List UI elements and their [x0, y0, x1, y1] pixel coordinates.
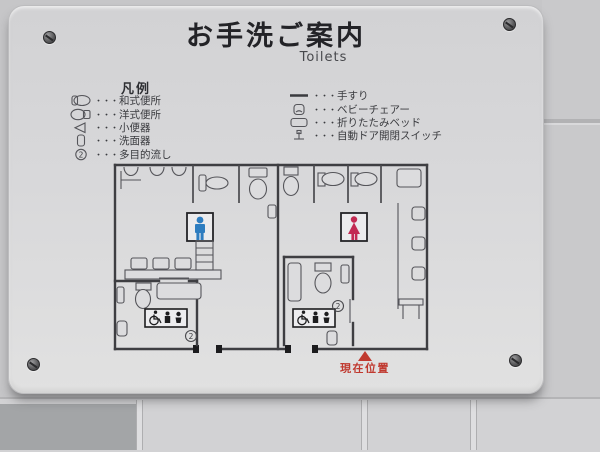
- multipurpose-sink-icon: 2: [67, 148, 93, 161]
- urinal: [124, 167, 138, 176]
- squat-toilet-icon: [67, 94, 93, 107]
- western-toilet: [322, 173, 344, 186]
- svg-text:2: 2: [336, 302, 341, 311]
- western-toilet: [355, 173, 377, 186]
- svg-text:2: 2: [189, 332, 194, 341]
- washbasin: [131, 258, 147, 269]
- mens-area: 2: [115, 165, 276, 345]
- legend-left-column: ・・・ 和式便所 ・・・ 洋式便所 ・・・ 小便器 ・・・ 洗面器: [67, 94, 172, 161]
- legend-right-column: ・・・ 手すり ・・・ ベビーチェアー ・・・ 折りたたみベッド ・・・ 自動ド…: [285, 89, 442, 143]
- legend-item-western-toilet: ・・・ 洋式便所: [67, 107, 172, 120]
- folding-bed-icon: [285, 116, 311, 129]
- handrail-icon: [285, 89, 311, 102]
- person-icon: [165, 312, 170, 324]
- folding-bed: [397, 169, 421, 187]
- folding-bed: [196, 241, 213, 270]
- legend-item-squat-toilet: ・・・ 和式便所: [67, 94, 172, 107]
- womens-area: 2: [284, 165, 426, 345]
- baby-chair: [412, 237, 425, 250]
- washbasin-icon: [67, 134, 93, 147]
- legend-item-auto-door-switch: ・・・ 自動ドア開閉スイッチ: [285, 129, 442, 142]
- western-toilet: [284, 177, 299, 196]
- entrance-post: [216, 345, 222, 353]
- accessible-room-right: 2: [284, 257, 353, 345]
- floor-plan: 2: [101, 159, 461, 373]
- entrance-post: [312, 345, 318, 353]
- folding-bed: [288, 263, 301, 301]
- wall-tile-dark: [0, 404, 136, 450]
- washbasin: [175, 258, 191, 269]
- legend-item-folding-bed: ・・・ 折りたたみベッド: [285, 116, 442, 129]
- legend-item-baby-chair: ・・・ ベビーチェアー: [285, 102, 442, 115]
- mens-room-symbol: [187, 213, 213, 241]
- entrance-post: [193, 345, 199, 353]
- current-location-label: 現在位置: [340, 361, 390, 373]
- tile-joint-vertical: [470, 400, 477, 450]
- tile-joint-vertical: [361, 400, 368, 450]
- western-toilet: [250, 179, 267, 199]
- western-toilet: [136, 290, 151, 309]
- legend-item-washbasin: ・・・ 洗面器: [67, 134, 172, 147]
- toilet-guide-sign: お手洗ご案内 Toilets 凡例 ・・・ 和式便所 ・・・ 洋式便所 ・・・ …: [8, 5, 544, 394]
- urinal-icon: [67, 121, 93, 134]
- washbasin: [117, 287, 124, 303]
- tile-joint-horizontal: [538, 119, 600, 123]
- legend-item-handrail: ・・・ 手すり: [285, 89, 442, 102]
- table: [399, 299, 423, 319]
- washbasin: [153, 258, 169, 269]
- multipurpose-sink-mark: 2: [333, 301, 344, 312]
- folding-bed: [157, 283, 201, 299]
- current-location-marker: 現在位置: [340, 351, 390, 373]
- multipurpose-sink-mark: 2: [186, 331, 197, 342]
- squat-toilet: [206, 177, 228, 189]
- tile-joint-vertical: [136, 400, 143, 450]
- washbasin: [327, 331, 337, 345]
- wall-tile-right: [542, 0, 600, 450]
- legend-item-urinal: ・・・ 小便器: [67, 121, 172, 134]
- person-icon: [313, 312, 318, 324]
- shelf: [341, 265, 349, 283]
- sign-subtitle: Toilets: [9, 50, 543, 65]
- auto-door-switch-icon: [285, 129, 311, 142]
- toilet-tank: [315, 263, 331, 271]
- toilet-tank: [136, 283, 151, 290]
- urinal: [172, 167, 186, 176]
- accessible-plaque: [293, 309, 335, 327]
- baby-chair: [412, 267, 425, 280]
- accessible-plaque: [145, 309, 187, 327]
- baby-chair: [412, 207, 425, 220]
- washbasin: [117, 321, 127, 336]
- urinal: [150, 167, 164, 175]
- location-triangle-icon: [358, 351, 372, 361]
- grab-bar: [121, 171, 141, 189]
- entrance-post: [285, 345, 291, 353]
- toilet-tank: [284, 167, 298, 175]
- western-toilet-icon: [67, 108, 93, 121]
- screw-icon: [27, 358, 40, 371]
- womens-room-symbol: [341, 213, 367, 241]
- toilet-tank: [249, 168, 267, 177]
- western-toilet: [315, 273, 331, 293]
- baby-chair-icon: [285, 103, 311, 116]
- screw-icon: [509, 354, 522, 367]
- squat-toilet-hood: [199, 175, 206, 191]
- svg-text:2: 2: [79, 150, 84, 159]
- washbasin: [268, 205, 276, 218]
- sign-title: お手洗ご案内: [9, 14, 543, 53]
- accessible-room-left: 2: [115, 278, 201, 345]
